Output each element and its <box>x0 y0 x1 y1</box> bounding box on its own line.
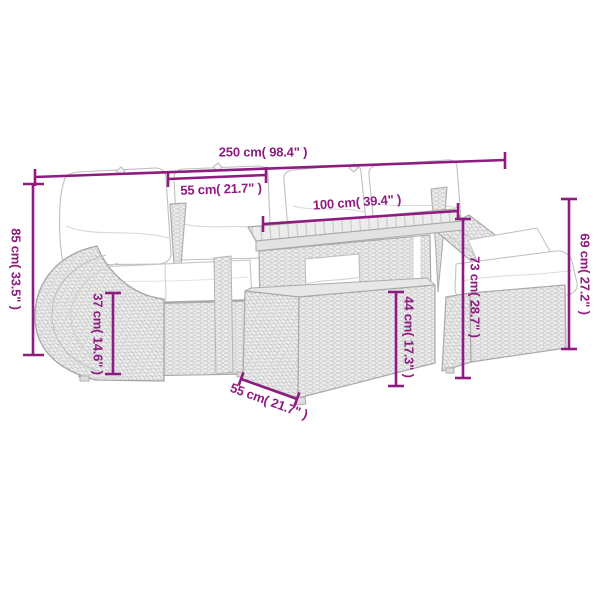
dimension-label-overall-height: 85 cm( 33.5" ) <box>9 228 24 309</box>
pillow-strap <box>431 187 447 292</box>
dimension-diagram: 250 cm( 98.4" ) 55 cm( 21.7" ) 100 cm( 3… <box>0 0 600 600</box>
back-pillow <box>60 168 171 265</box>
table <box>243 209 463 405</box>
dimension-label-seat-width: 55 cm( 21.7" ) <box>180 180 262 198</box>
dimension-label-back-height: 73 cm( 28.7" ) <box>468 256 483 337</box>
sofa-divider-post <box>214 256 233 374</box>
right-stool <box>436 215 577 373</box>
dimension-label-overall-width: 250 cm( 98.4" ) <box>219 145 307 160</box>
sofa-foot <box>80 376 89 381</box>
stool-foot <box>446 368 454 373</box>
stool-front-face <box>470 285 566 362</box>
dimension-label-stool-height: 69 cm( 27.2" ) <box>578 233 593 314</box>
dimension-label-seat-height: 37 cm( 14.6" ) <box>91 293 106 374</box>
dimension-label-table-height: 44 cm( 17.3" ) <box>402 296 417 377</box>
